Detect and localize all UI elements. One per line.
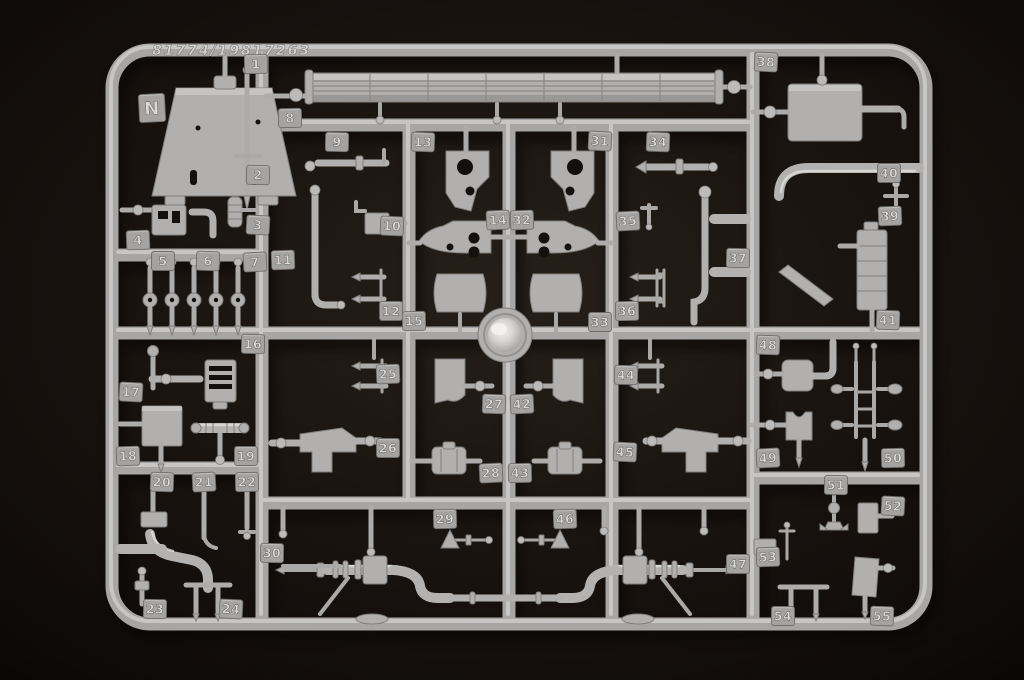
svg-text:45: 45 <box>615 444 634 460</box>
part-number-tag-49: 49 <box>756 448 780 468</box>
part-number-tag-53: 53 <box>756 547 780 567</box>
part-number-tag-24: 24 <box>219 599 243 619</box>
svg-text:1: 1 <box>251 56 260 71</box>
part-number-tag-43: 43 <box>508 463 531 482</box>
svg-text:2: 2 <box>253 167 262 182</box>
svg-text:40: 40 <box>880 165 898 180</box>
part-number-tag-36: 36 <box>615 301 638 320</box>
photo-stage: 81774/19817263 N123456789101112131415161… <box>0 0 1024 680</box>
svg-text:5: 5 <box>158 253 167 268</box>
svg-text:17: 17 <box>121 384 140 400</box>
svg-text:55: 55 <box>873 608 892 624</box>
part-number-tag-39: 39 <box>878 206 902 226</box>
svg-text:51: 51 <box>827 477 846 492</box>
part-number-tag-23: 23 <box>143 599 166 618</box>
part-number-tag-50: 50 <box>881 448 904 467</box>
part-number-tag-5: 5 <box>152 252 175 271</box>
part-number-tag-37: 37 <box>726 248 749 267</box>
part-number-tag-29: 29 <box>433 509 456 528</box>
part-number-tag-35: 35 <box>616 211 640 231</box>
part-number-tag-54: 54 <box>772 607 795 626</box>
svg-text:25: 25 <box>379 366 398 382</box>
part-number-tag-16: 16 <box>241 334 264 353</box>
svg-text:34: 34 <box>649 134 668 150</box>
svg-text:41: 41 <box>879 312 898 328</box>
svg-text:7: 7 <box>250 254 260 269</box>
part-number-tag-48: 48 <box>756 335 780 355</box>
part-number-tag-14: 14 <box>486 210 510 230</box>
part-number-tag-27: 27 <box>482 394 506 414</box>
svg-text:12: 12 <box>382 303 400 318</box>
svg-text:18: 18 <box>119 448 138 464</box>
part-number-tag-17: 17 <box>119 382 143 402</box>
svg-text:8: 8 <box>285 110 294 125</box>
part-number-tag-3: 3 <box>246 215 270 235</box>
svg-text:15: 15 <box>405 313 424 328</box>
svg-text:54: 54 <box>774 608 792 623</box>
part-number-tag-46: 46 <box>553 509 577 529</box>
svg-text:14: 14 <box>488 212 507 228</box>
svg-text:47: 47 <box>729 556 747 571</box>
svg-text:9: 9 <box>332 134 341 149</box>
svg-text:48: 48 <box>759 337 778 353</box>
svg-text:20: 20 <box>153 474 172 490</box>
part-number-tag-10: 10 <box>380 216 404 236</box>
part-number-tag-25: 25 <box>376 364 400 384</box>
svg-text:11: 11 <box>274 252 293 268</box>
part-number-tag-21: 21 <box>192 472 216 492</box>
svg-text:36: 36 <box>618 303 637 318</box>
svg-text:6: 6 <box>203 253 213 268</box>
svg-text:44: 44 <box>617 367 636 382</box>
svg-text:23: 23 <box>146 601 165 616</box>
mold-code-text: 81774/19817263 <box>152 43 311 59</box>
part-number-tag-45: 45 <box>613 442 637 462</box>
part-number-tag-19: 19 <box>235 447 258 466</box>
part-number-tag-12: 12 <box>380 302 403 321</box>
part-number-tag-15: 15 <box>402 311 425 330</box>
part-number-tag-26: 26 <box>377 439 400 458</box>
part-number-tag-32: 32 <box>510 210 534 230</box>
part-number-tag-51: 51 <box>824 475 847 494</box>
part-number-tag-38: 38 <box>754 52 778 72</box>
part-number-tag-6: 6 <box>196 251 220 271</box>
part-number-tag-47: 47 <box>727 555 750 574</box>
svg-text:29: 29 <box>436 511 455 526</box>
svg-text:38: 38 <box>756 54 775 70</box>
svg-text:27: 27 <box>485 396 504 412</box>
svg-text:10: 10 <box>382 218 401 234</box>
svg-text:22: 22 <box>238 474 257 489</box>
svg-text:28: 28 <box>481 465 500 481</box>
svg-text:16: 16 <box>244 336 263 351</box>
svg-text:30: 30 <box>263 545 282 560</box>
svg-text:26: 26 <box>379 440 397 455</box>
svg-text:4: 4 <box>133 232 143 247</box>
part-number-tag-30: 30 <box>260 543 283 562</box>
svg-text:24: 24 <box>221 601 240 617</box>
part-number-tag-1: 1 <box>244 54 267 73</box>
part-number-tag-33: 33 <box>589 313 612 332</box>
part-number-tag-44: 44 <box>614 365 637 384</box>
svg-text:3: 3 <box>253 217 263 232</box>
part-number-tag-8: 8 <box>278 108 301 127</box>
part-number-tag-13: 13 <box>411 132 435 152</box>
svg-text:53: 53 <box>759 549 778 565</box>
svg-text:49: 49 <box>758 450 777 466</box>
svg-text:39: 39 <box>881 208 900 224</box>
svg-text:19: 19 <box>237 448 255 463</box>
part-number-tag-2: 2 <box>246 165 269 184</box>
svg-text:50: 50 <box>884 450 903 465</box>
part-number-tag-4: 4 <box>126 230 150 250</box>
part-number-tag-7: 7 <box>243 252 267 272</box>
sprue-photo: 81774/19817263 N123456789101112131415161… <box>0 0 1024 680</box>
part-number-tag-41: 41 <box>876 310 900 330</box>
svg-text:13: 13 <box>414 134 433 150</box>
svg-text:46: 46 <box>556 511 575 527</box>
svg-text:33: 33 <box>591 314 609 329</box>
svg-text:21: 21 <box>194 474 213 490</box>
part-number-tag-18: 18 <box>116 446 140 466</box>
svg-text:N: N <box>144 98 161 120</box>
part-number-tag-22: 22 <box>235 472 258 491</box>
part-round-hatch <box>478 308 532 362</box>
svg-text:32: 32 <box>513 212 532 228</box>
svg-text:35: 35 <box>618 213 637 229</box>
part-number-tag-40: 40 <box>878 164 901 183</box>
svg-text:37: 37 <box>729 250 748 265</box>
part-number-tag-9: 9 <box>325 132 348 151</box>
svg-text:43: 43 <box>511 465 530 480</box>
svg-text:42: 42 <box>512 396 531 412</box>
part-number-tag-42: 42 <box>510 394 534 414</box>
part-number-tag-55: 55 <box>870 606 894 626</box>
part-number-tag-11: 11 <box>271 250 295 270</box>
part-number-tag-28: 28 <box>479 463 503 483</box>
part-number-tag-20: 20 <box>150 472 174 492</box>
part-number-tag-34: 34 <box>646 132 670 152</box>
svg-text:52: 52 <box>883 498 902 514</box>
part-number-tag-31: 31 <box>588 131 612 151</box>
part-number-tag-N: N <box>138 93 165 122</box>
part-number-tag-52: 52 <box>881 496 905 516</box>
svg-text:31: 31 <box>590 133 609 149</box>
